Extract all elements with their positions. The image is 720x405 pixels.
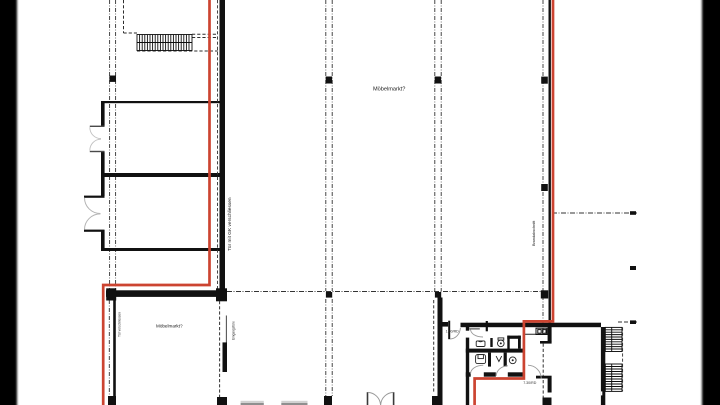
svg-text:Möbelmarkt?: Möbelmarkt? bbox=[373, 87, 405, 93]
svg-text:Tür mit GK verschliessen: Tür mit GK verschliessen bbox=[227, 197, 233, 251]
svg-text:1.90/RD: 1.90/RD bbox=[446, 330, 460, 334]
svg-text:Tür verschliessen: Tür verschliessen bbox=[118, 312, 122, 337]
svg-text:Eingangstüre: Eingangstüre bbox=[232, 321, 236, 340]
svg-text:7.30/RD: 7.30/RD bbox=[523, 381, 537, 385]
svg-text:Brandabschnitt: Brandabschnitt bbox=[532, 220, 536, 246]
svg-text:Möbelmarkt?: Möbelmarkt? bbox=[156, 324, 183, 329]
